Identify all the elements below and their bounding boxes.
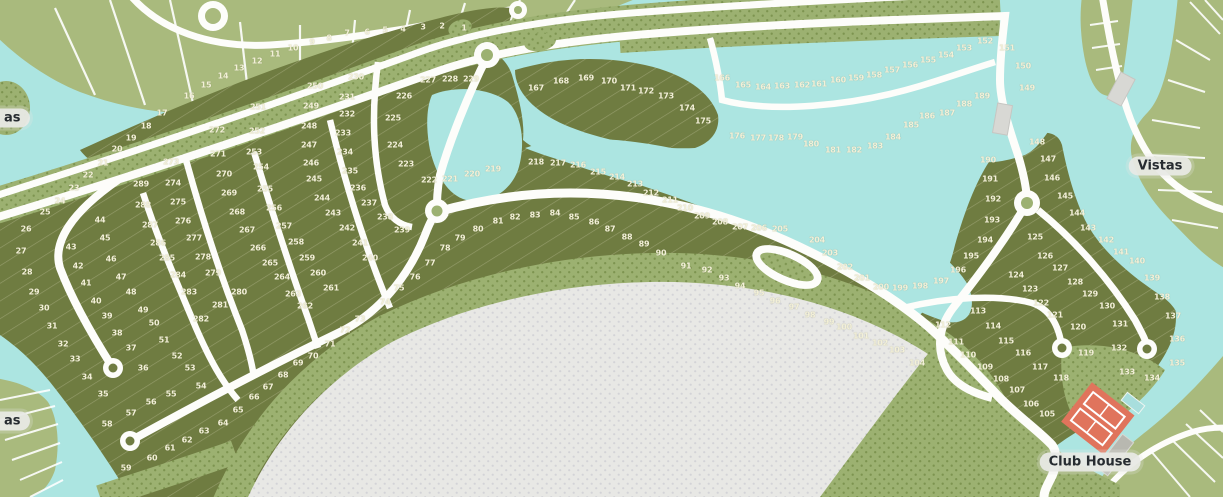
lot-264[interactable]: 264 (274, 273, 290, 282)
lot-99[interactable]: 99 (824, 318, 835, 327)
lot-117[interactable]: 117 (1032, 363, 1048, 372)
lot-182[interactable]: 182 (846, 146, 862, 155)
lot-209[interactable]: 209 (694, 212, 710, 221)
lot-28[interactable]: 28 (22, 268, 33, 277)
lot-180[interactable]: 180 (803, 140, 819, 149)
lot-114[interactable]: 114 (985, 322, 1001, 331)
lot-108[interactable]: 108 (993, 375, 1009, 384)
lot-107[interactable]: 107 (1009, 386, 1025, 395)
lot-221[interactable]: 221 (442, 175, 458, 184)
lot-227[interactable]: 227 (420, 76, 436, 85)
lot-204[interactable]: 204 (809, 236, 825, 245)
lot-49[interactable]: 49 (138, 306, 149, 315)
lot-230[interactable]: 230 (348, 73, 364, 82)
lot-246[interactable]: 246 (303, 159, 319, 168)
lot-79[interactable]: 79 (455, 234, 466, 243)
lot-29[interactable]: 29 (29, 288, 40, 297)
lot-259[interactable]: 259 (299, 254, 315, 263)
lot-43[interactable]: 43 (66, 243, 77, 252)
lot-93[interactable]: 93 (719, 274, 730, 283)
lot-165[interactable]: 165 (735, 81, 751, 90)
lot-166[interactable]: 166 (714, 74, 730, 83)
lot-74[interactable]: 74 (380, 298, 391, 307)
lot-197[interactable]: 197 (933, 277, 949, 286)
lot-128[interactable]: 128 (1067, 278, 1083, 287)
lot-11[interactable]: 11 (270, 50, 281, 59)
lot-84[interactable]: 84 (550, 209, 561, 218)
lot-51[interactable]: 51 (159, 336, 170, 345)
lot-109[interactable]: 109 (977, 363, 993, 372)
lot-41[interactable]: 41 (81, 279, 92, 288)
lot-56[interactable]: 56 (146, 398, 157, 407)
lot-179[interactable]: 179 (787, 133, 803, 142)
lot-253[interactable]: 253 (246, 148, 262, 157)
lot-61[interactable]: 61 (165, 444, 176, 453)
lot-63[interactable]: 63 (199, 427, 210, 436)
lot-144[interactable]: 144 (1069, 209, 1085, 218)
lot-105[interactable]: 105 (1039, 410, 1055, 419)
lot-272[interactable]: 272 (209, 126, 225, 135)
lot-152[interactable]: 152 (977, 37, 993, 46)
lot-102[interactable]: 102 (872, 339, 888, 348)
lot-243[interactable]: 243 (325, 209, 341, 218)
lot-65[interactable]: 65 (233, 406, 244, 415)
lot-76[interactable]: 76 (410, 273, 421, 282)
lot-27[interactable]: 27 (16, 247, 27, 256)
lot-171[interactable]: 171 (620, 84, 636, 93)
lot-282[interactable]: 282 (193, 315, 209, 324)
lot-181[interactable]: 181 (825, 146, 841, 155)
lot-66[interactable]: 66 (249, 393, 260, 402)
lot-284[interactable]: 284 (170, 271, 186, 280)
lot-77[interactable]: 77 (425, 259, 436, 268)
lot-234[interactable]: 234 (337, 148, 353, 157)
lot-17[interactable]: 17 (157, 109, 168, 118)
lot-202[interactable]: 202 (837, 263, 853, 272)
lot-39[interactable]: 39 (102, 312, 113, 321)
lot-267[interactable]: 267 (239, 226, 255, 235)
lot-126[interactable]: 126 (1037, 252, 1053, 261)
lot-88[interactable]: 88 (622, 233, 633, 242)
lot-120[interactable]: 120 (1070, 323, 1086, 332)
lot-71[interactable]: 71 (325, 340, 336, 349)
lot-83[interactable]: 83 (530, 211, 541, 220)
lot-38[interactable]: 38 (112, 329, 123, 338)
lot-275[interactable]: 275 (170, 198, 186, 207)
lot-16[interactable]: 16 (184, 92, 195, 101)
lot-273[interactable]: 273 (163, 158, 179, 167)
lot-258[interactable]: 258 (288, 238, 304, 247)
lot-279[interactable]: 279 (205, 269, 221, 278)
lot-127[interactable]: 127 (1052, 264, 1068, 273)
lot-147[interactable]: 147 (1040, 155, 1056, 164)
lot-96[interactable]: 96 (770, 297, 781, 306)
lot-250[interactable]: 250 (307, 82, 323, 91)
lot-214[interactable]: 214 (609, 173, 625, 182)
lot-53[interactable]: 53 (185, 364, 196, 373)
lot-198[interactable]: 198 (912, 282, 928, 291)
lot-137[interactable]: 137 (1165, 312, 1181, 321)
lot-224[interactable]: 224 (387, 141, 403, 150)
lot-14[interactable]: 14 (218, 72, 229, 81)
lot-205[interactable]: 205 (772, 225, 788, 234)
lot-172[interactable]: 172 (638, 87, 654, 96)
lot-73[interactable]: 73 (355, 315, 366, 324)
lot-161[interactable]: 161 (811, 80, 827, 89)
lot-268[interactable]: 268 (229, 208, 245, 217)
lot-151[interactable]: 151 (999, 44, 1015, 53)
lot-81[interactable]: 81 (493, 217, 504, 226)
lot-191[interactable]: 191 (982, 175, 998, 184)
lot-220[interactable]: 220 (464, 170, 480, 179)
lot-124[interactable]: 124 (1008, 271, 1024, 280)
lot-175[interactable]: 175 (695, 117, 711, 126)
lot-244[interactable]: 244 (314, 194, 330, 203)
lot-217[interactable]: 217 (550, 159, 566, 168)
lot-156[interactable]: 156 (902, 61, 918, 70)
lot-18[interactable]: 18 (141, 122, 152, 131)
lot-256[interactable]: 256 (266, 204, 282, 213)
lot-163[interactable]: 163 (774, 82, 790, 91)
lot-206[interactable]: 206 (751, 224, 767, 233)
lot-215[interactable]: 215 (590, 168, 606, 177)
lot-251[interactable]: 251 (250, 103, 266, 112)
lot-24[interactable]: 24 (55, 197, 66, 206)
lot-199[interactable]: 199 (892, 284, 908, 293)
lot-226[interactable]: 226 (396, 92, 412, 101)
lot-35[interactable]: 35 (98, 390, 109, 399)
lot-30[interactable]: 30 (39, 304, 50, 313)
lot-289[interactable]: 289 (133, 180, 149, 189)
lot-118[interactable]: 118 (1053, 374, 1069, 383)
lot-111[interactable]: 111 (948, 338, 964, 347)
lot-12[interactable]: 12 (252, 57, 263, 66)
lot-141[interactable]: 141 (1113, 248, 1129, 257)
lot-260[interactable]: 260 (310, 269, 326, 278)
lot-153[interactable]: 153 (956, 44, 972, 53)
lot-146[interactable]: 146 (1044, 174, 1060, 183)
lot-5[interactable]: 5 (382, 26, 387, 35)
lot-98[interactable]: 98 (805, 311, 816, 320)
lot-154[interactable]: 154 (938, 51, 954, 60)
lot-80[interactable]: 80 (473, 225, 484, 234)
lot-213[interactable]: 213 (627, 180, 643, 189)
lot-183[interactable]: 183 (867, 142, 883, 151)
lot-167[interactable]: 167 (528, 84, 544, 93)
lot-164[interactable]: 164 (755, 83, 771, 92)
lot-178[interactable]: 178 (768, 134, 784, 143)
lot-25[interactable]: 25 (40, 208, 51, 217)
lot-276[interactable]: 276 (175, 217, 191, 226)
lot-245[interactable]: 245 (306, 175, 322, 184)
lot-200[interactable]: 200 (873, 283, 889, 292)
lot-103[interactable]: 103 (889, 346, 905, 355)
lot-150[interactable]: 150 (1015, 62, 1031, 71)
lot-78[interactable]: 78 (440, 244, 451, 253)
lot-170[interactable]: 170 (601, 77, 617, 86)
lot-255[interactable]: 255 (257, 185, 273, 194)
lot-238[interactable]: 238 (377, 213, 393, 222)
lot-50[interactable]: 50 (149, 319, 160, 328)
map-label-edge-label-bottom[interactable]: as (0, 412, 30, 431)
lot-8[interactable]: 8 (326, 34, 331, 43)
lot-42[interactable]: 42 (73, 262, 84, 271)
lot-6[interactable]: 6 (364, 28, 369, 37)
lot-1[interactable]: 1 (461, 24, 466, 33)
lot-187[interactable]: 187 (939, 109, 955, 118)
lot-212[interactable]: 212 (643, 189, 659, 198)
lot-219[interactable]: 219 (485, 165, 501, 174)
lot-228[interactable]: 228 (442, 75, 458, 84)
site-plan-map: 1234567891011121314151617181920212223242… (0, 0, 1223, 497)
lot-90[interactable]: 90 (656, 249, 667, 258)
lot-254[interactable]: 254 (253, 163, 269, 172)
lot-68[interactable]: 68 (278, 371, 289, 380)
lot-131[interactable]: 131 (1112, 320, 1128, 329)
lot-193[interactable]: 193 (984, 216, 1000, 225)
lot-176[interactable]: 176 (729, 132, 745, 141)
lot-89[interactable]: 89 (639, 240, 650, 249)
lot-47[interactable]: 47 (116, 273, 127, 282)
lot-31[interactable]: 31 (47, 322, 58, 331)
lot-283[interactable]: 283 (181, 288, 197, 297)
lot-257[interactable]: 257 (276, 222, 292, 231)
lot-168[interactable]: 168 (553, 77, 569, 86)
lot-277[interactable]: 277 (186, 234, 202, 243)
lot-59[interactable]: 59 (121, 464, 132, 473)
lot-46[interactable]: 46 (106, 255, 117, 264)
lot-169[interactable]: 169 (578, 74, 594, 83)
map-label-edge-label-top[interactable]: as (0, 109, 30, 128)
lot-119[interactable]: 119 (1078, 349, 1094, 358)
lot-286[interactable]: 286 (150, 239, 166, 248)
lot-19[interactable]: 19 (126, 134, 137, 143)
lot-222[interactable]: 222 (421, 176, 437, 185)
lot-231[interactable]: 231 (339, 93, 355, 102)
lot-262[interactable]: 262 (297, 302, 313, 311)
lot-130[interactable]: 130 (1099, 302, 1115, 311)
lot-211[interactable]: 211 (662, 196, 678, 205)
lot-140[interactable]: 140 (1129, 257, 1145, 266)
lot-21[interactable]: 21 (98, 159, 109, 168)
lot-100[interactable]: 100 (836, 323, 852, 332)
lot-162[interactable]: 162 (794, 81, 810, 90)
lot-201[interactable]: 201 (854, 274, 870, 283)
lot-189[interactable]: 189 (974, 92, 990, 101)
lot-145[interactable]: 145 (1057, 192, 1073, 201)
lot-115[interactable]: 115 (998, 337, 1014, 346)
lot-75[interactable]: 75 (394, 284, 405, 293)
lot-271[interactable]: 271 (210, 150, 226, 159)
lot-242[interactable]: 242 (339, 224, 355, 233)
lot-236[interactable]: 236 (350, 184, 366, 193)
lot-142[interactable]: 142 (1098, 236, 1114, 245)
map-label-club-house[interactable]: Club House (1040, 453, 1141, 472)
lot-70[interactable]: 70 (308, 352, 319, 361)
lot-55[interactable]: 55 (166, 390, 177, 399)
lot-184[interactable]: 184 (885, 133, 901, 142)
lot-60[interactable]: 60 (147, 454, 158, 463)
lot-266[interactable]: 266 (250, 244, 266, 253)
lot-192[interactable]: 192 (985, 195, 1001, 204)
lot-148[interactable]: 148 (1029, 138, 1045, 147)
lot-174[interactable]: 174 (679, 104, 695, 113)
lot-87[interactable]: 87 (605, 225, 616, 234)
lot-159[interactable]: 159 (848, 74, 864, 83)
lot-186[interactable]: 186 (919, 112, 935, 121)
lot-110[interactable]: 110 (960, 351, 976, 360)
lot-3[interactable]: 3 (420, 23, 425, 32)
lot-196[interactable]: 196 (950, 266, 966, 275)
lot-265[interactable]: 265 (262, 259, 278, 268)
lot-58[interactable]: 58 (102, 420, 113, 429)
lot-216[interactable]: 216 (570, 161, 586, 170)
lot-249[interactable]: 249 (303, 102, 319, 111)
lot-188[interactable]: 188 (956, 100, 972, 109)
lot-62[interactable]: 62 (182, 436, 193, 445)
lot-10[interactable]: 10 (288, 44, 299, 53)
lot-37[interactable]: 37 (126, 344, 137, 353)
lot-207[interactable]: 207 (732, 223, 748, 232)
lot-160[interactable]: 160 (830, 76, 846, 85)
lot-32[interactable]: 32 (58, 340, 69, 349)
lot-218[interactable]: 218 (528, 158, 544, 167)
lot-248[interactable]: 248 (301, 122, 317, 131)
lot-112[interactable]: 112 (935, 321, 951, 330)
lot-252[interactable]: 252 (249, 127, 265, 136)
lot-274[interactable]: 274 (165, 179, 181, 188)
lot-155[interactable]: 155 (920, 56, 936, 65)
lot-269[interactable]: 269 (221, 189, 237, 198)
lot-125[interactable]: 125 (1027, 233, 1043, 242)
lot-72[interactable]: 72 (340, 326, 351, 335)
lot-241[interactable]: 241 (352, 239, 368, 248)
lot-270[interactable]: 270 (216, 170, 232, 179)
lot-134[interactable]: 134 (1144, 374, 1160, 383)
lot-223[interactable]: 223 (398, 160, 414, 169)
lot-149[interactable]: 149 (1019, 84, 1035, 93)
lot-9[interactable]: 9 (309, 38, 314, 47)
lot-229[interactable]: 229 (463, 75, 479, 84)
lot-48[interactable]: 48 (126, 288, 137, 297)
lot-203[interactable]: 203 (822, 249, 838, 258)
lot-52[interactable]: 52 (172, 352, 183, 361)
lot-92[interactable]: 92 (702, 266, 713, 275)
lot-91[interactable]: 91 (681, 262, 692, 271)
lot-2[interactable]: 2 (439, 22, 444, 31)
lot-15[interactable]: 15 (201, 81, 212, 90)
lot-82[interactable]: 82 (510, 213, 521, 222)
lot-104[interactable]: 104 (909, 359, 925, 368)
lot-138[interactable]: 138 (1154, 293, 1170, 302)
lot-23[interactable]: 23 (69, 184, 80, 193)
lot-247[interactable]: 247 (301, 141, 317, 150)
lot-263[interactable]: 263 (285, 290, 301, 299)
lot-20[interactable]: 20 (112, 145, 123, 154)
lot-136[interactable]: 136 (1169, 335, 1185, 344)
lot-135[interactable]: 135 (1169, 359, 1185, 368)
lot-122[interactable]: 122 (1033, 299, 1049, 308)
lot-7[interactable]: 7 (344, 29, 349, 38)
lot-233[interactable]: 233 (335, 129, 351, 138)
lot-97[interactable]: 97 (789, 303, 800, 312)
lot-94[interactable]: 94 (735, 282, 746, 291)
lot-210[interactable]: 210 (677, 204, 693, 213)
lot-133[interactable]: 133 (1119, 368, 1135, 377)
lot-40[interactable]: 40 (91, 297, 102, 306)
lot-22[interactable]: 22 (83, 171, 94, 180)
lot-69[interactable]: 69 (293, 359, 304, 368)
lot-116[interactable]: 116 (1015, 349, 1031, 358)
lot-225[interactable]: 225 (385, 114, 401, 123)
lot-278[interactable]: 278 (195, 253, 211, 262)
lot-261[interactable]: 261 (323, 284, 339, 293)
map-canvas (0, 0, 1223, 497)
lot-232[interactable]: 232 (339, 110, 355, 119)
lot-64[interactable]: 64 (218, 419, 229, 428)
lot-121[interactable]: 121 (1047, 311, 1063, 320)
lot-106[interactable]: 106 (1023, 400, 1039, 409)
lot-237[interactable]: 237 (361, 199, 377, 208)
lot-4[interactable]: 4 (400, 25, 405, 34)
lot-195[interactable]: 195 (963, 252, 979, 261)
lot-129[interactable]: 129 (1082, 290, 1098, 299)
map-label-vistas[interactable]: Vistas (1129, 157, 1192, 176)
lot-85[interactable]: 85 (569, 213, 580, 222)
lot-177[interactable]: 177 (750, 134, 766, 143)
lot-54[interactable]: 54 (196, 382, 207, 391)
lot-185[interactable]: 185 (903, 121, 919, 130)
lot-101[interactable]: 101 (853, 332, 869, 341)
lot-208[interactable]: 208 (712, 218, 728, 227)
lot-288[interactable]: 288 (135, 201, 151, 210)
lot-36[interactable]: 36 (138, 364, 149, 373)
lot-34[interactable]: 34 (82, 373, 93, 382)
lot-287[interactable]: 287 (142, 221, 158, 230)
lot-158[interactable]: 158 (866, 71, 882, 80)
lot-173[interactable]: 173 (658, 92, 674, 101)
lot-132[interactable]: 132 (1111, 344, 1127, 353)
lot-67[interactable]: 67 (263, 383, 274, 392)
lot-139[interactable]: 139 (1144, 274, 1160, 283)
lot-33[interactable]: 33 (70, 355, 81, 364)
lot-235[interactable]: 235 (342, 167, 358, 176)
lot-240[interactable]: 240 (362, 254, 378, 263)
lot-280[interactable]: 280 (231, 288, 247, 297)
lot-113[interactable]: 113 (970, 307, 986, 316)
lot-57[interactable]: 57 (126, 409, 137, 418)
lot-45[interactable]: 45 (100, 234, 111, 243)
lot-86[interactable]: 86 (589, 218, 600, 227)
lot-239[interactable]: 239 (394, 226, 410, 235)
lot-95[interactable]: 95 (754, 289, 765, 298)
lot-190[interactable]: 190 (980, 156, 996, 165)
lot-123[interactable]: 123 (1022, 285, 1038, 294)
lot-194[interactable]: 194 (977, 236, 993, 245)
lot-26[interactable]: 26 (21, 225, 32, 234)
lot-44[interactable]: 44 (95, 216, 106, 225)
lot-281[interactable]: 281 (212, 301, 228, 310)
lot-13[interactable]: 13 (234, 64, 245, 73)
lot-285[interactable]: 285 (159, 254, 175, 263)
lot-143[interactable]: 143 (1080, 224, 1096, 233)
lot-157[interactable]: 157 (884, 66, 900, 75)
